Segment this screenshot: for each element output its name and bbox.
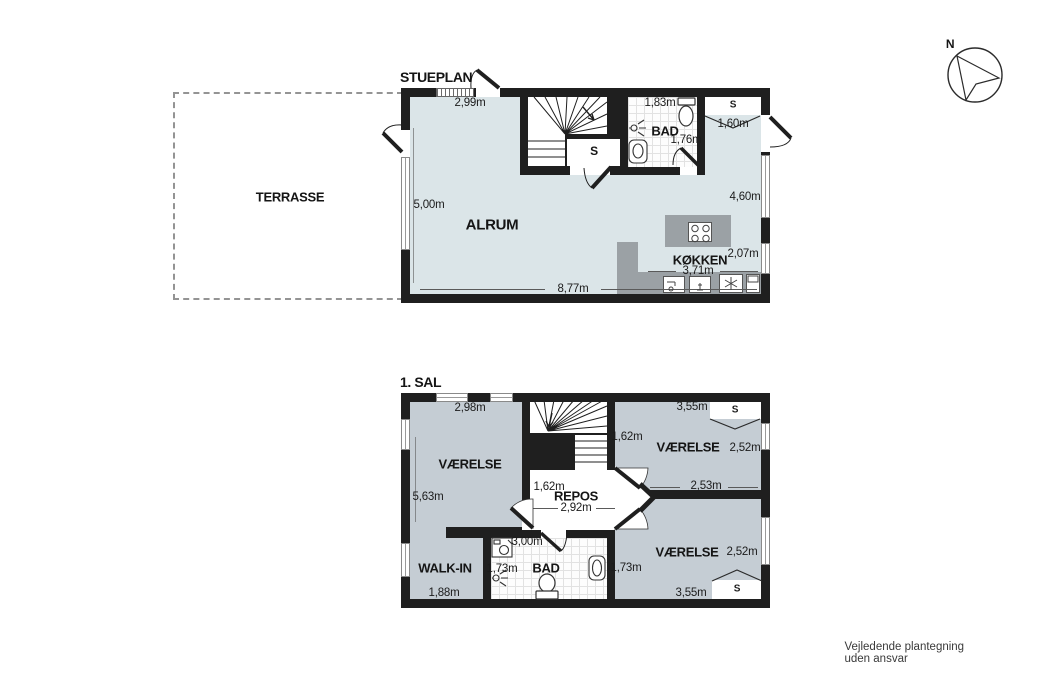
- dim-stair-width: 1,62m: [612, 431, 643, 443]
- dim-ne-bottom: 2,53m: [691, 480, 722, 492]
- dim-bad-depth: 1,76m: [671, 134, 702, 146]
- dimension-line: [720, 271, 758, 272]
- dimension-line: [596, 508, 636, 509]
- dim-bottom-width: 8,77m: [558, 283, 589, 295]
- dim-ne-depth: 2,52m: [730, 442, 761, 454]
- dim-repos-left: 1,62m: [534, 481, 565, 493]
- fridge-icon: [746, 274, 760, 293]
- kitchen-counter-left: [617, 242, 638, 294]
- window: [761, 423, 770, 450]
- dimension-line: [601, 289, 757, 290]
- entry-door-gap: [761, 115, 770, 152]
- dim-left-depth: 5,00m: [414, 199, 445, 211]
- top-door-gap: [476, 88, 500, 97]
- first-floor-title: 1. SAL: [400, 374, 441, 390]
- dim-left-depth-upper: 5,63m: [413, 491, 444, 503]
- room-label-walkin: WALK-IN: [418, 561, 472, 576]
- cooktop-icon: [688, 222, 712, 242]
- window: [761, 155, 770, 218]
- dimension-line: [532, 508, 558, 509]
- footer-disclaimer: Vejledende plantegning uden ansvar: [845, 641, 982, 665]
- dim-se-width: 3,55m: [676, 587, 707, 599]
- dim-kitchen-width: 3,71m: [683, 265, 714, 277]
- window: [401, 157, 410, 250]
- ground-stairs-lower: [528, 97, 565, 166]
- dim-repos-width: 2,92m: [561, 502, 592, 514]
- dim-kitchen-depth: 2,07m: [728, 248, 759, 260]
- closet-label-right: S: [730, 100, 736, 111]
- dimension-line: [728, 487, 758, 488]
- window: [436, 88, 474, 97]
- wall: [401, 294, 770, 303]
- understair-closet-door-gap: [570, 166, 610, 175]
- repos-nw-wall: [522, 470, 530, 502]
- closet-label-mid: S: [590, 144, 598, 158]
- dim-nw-width: 2,98m: [455, 402, 486, 414]
- compass-icon: [948, 48, 1002, 102]
- dim-ne-width: 3,55m: [677, 401, 708, 413]
- room-label-alrum: ALRUM: [466, 217, 519, 234]
- window: [761, 517, 770, 565]
- window: [436, 393, 468, 402]
- closet-label-ne: S: [732, 405, 738, 416]
- closet-label-se: S: [734, 584, 740, 595]
- terrace-door-gap: [401, 130, 410, 158]
- upper-bath-door-gap: [541, 530, 566, 538]
- dimension-line: [648, 271, 676, 272]
- nw-room-door-gap: [522, 500, 530, 530]
- freezer-icon: [719, 274, 743, 293]
- dim-bad-width-upper: 3,00m: [512, 536, 543, 548]
- dishwasher-icon: [689, 276, 711, 293]
- dim-se-depth: 2,52m: [727, 546, 758, 558]
- dim-se-left: 1,73m: [611, 562, 642, 574]
- wall: [401, 599, 770, 608]
- upper-stairs-run: [575, 435, 607, 470]
- window: [490, 393, 513, 402]
- ground-floor-title: STUEPLAN: [400, 69, 472, 85]
- window: [401, 543, 410, 577]
- compass-north-label: N: [946, 37, 954, 51]
- dim-top-width: 2,99m: [455, 97, 486, 109]
- upper-stairs-fan: [530, 400, 607, 433]
- dimension-line: [415, 437, 416, 522]
- dimension-line: [650, 487, 680, 488]
- window: [761, 243, 770, 274]
- room-label-terrasse: TERRASSE: [256, 190, 324, 205]
- dim-bad-depth-upper: 1,73m: [487, 563, 518, 575]
- dim-right-depth: 4,60m: [730, 191, 761, 203]
- dimension-line: [420, 289, 545, 290]
- ground-bath-door-gap: [680, 167, 697, 175]
- room-label-vaerelse-ne: VÆRELSE: [657, 440, 720, 455]
- dim-walkin-width: 1,88m: [429, 587, 460, 599]
- room-label-vaerelse-se: VÆRELSE: [656, 545, 719, 560]
- kitchen-sink-unit-icon: [663, 276, 685, 293]
- room-label-vaerelse-nw: VÆRELSE: [439, 457, 502, 472]
- dim-bad-width: 1,83m: [645, 97, 676, 109]
- window: [401, 419, 410, 450]
- floorplan-canvas: STUEPLAN TERRASSE ALRUM BAD KØKKEN S S 2…: [0, 0, 1050, 700]
- room-label-bad-upper: BAD: [532, 561, 559, 576]
- dim-closet-width: 1,60m: [718, 118, 749, 130]
